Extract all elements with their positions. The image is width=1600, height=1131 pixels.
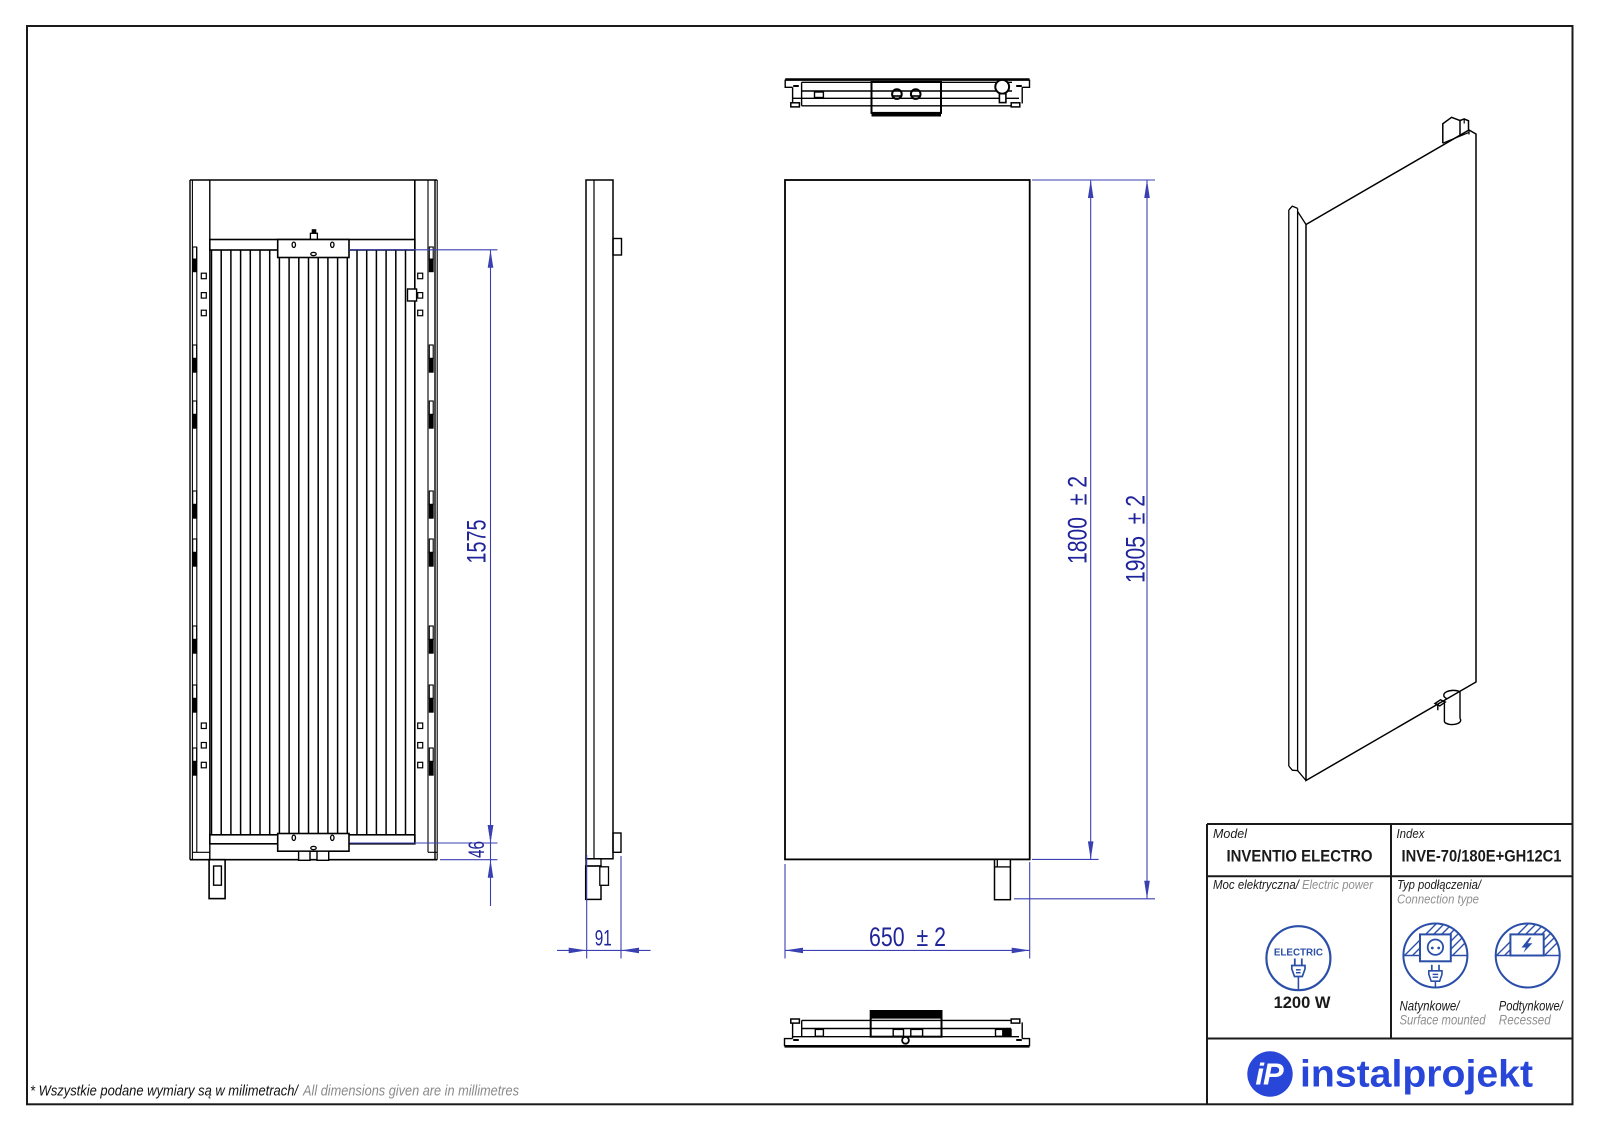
svg-text:Connection type: Connection type (1397, 892, 1479, 907)
svg-text:Electric power: Electric power (1302, 877, 1374, 892)
svg-text:1200 W: 1200 W (1274, 994, 1331, 1012)
svg-text:INVENTIO ELECTRO: INVENTIO ELECTRO (1227, 848, 1373, 866)
svg-text:46: 46 (464, 841, 489, 858)
svg-text:INVE-70/180E+GH12C1: INVE-70/180E+GH12C1 (1402, 848, 1562, 866)
svg-text:All dimensions given are in mi: All dimensions given are in millimetres (302, 1083, 519, 1100)
svg-text:Index: Index (1397, 827, 1426, 841)
svg-text:Surface mounted: Surface mounted (1400, 1012, 1487, 1028)
svg-text:91: 91 (595, 926, 612, 951)
svg-text:1800 ± 2: 1800 ± 2 (1063, 476, 1093, 564)
svg-text:1575: 1575 (462, 520, 492, 564)
svg-text:Moc elektryczna/: Moc elektryczna/ (1213, 877, 1300, 892)
svg-text:Typ podłączenia/: Typ podłączenia/ (1397, 877, 1482, 892)
svg-text:Recessed: Recessed (1499, 1012, 1552, 1028)
svg-text:1905 ± 2: 1905 ± 2 (1121, 495, 1151, 583)
svg-text:* Wszystkie podane wymiary są: * Wszystkie podane wymiary są w milimetr… (30, 1083, 300, 1100)
svg-text:iP: iP (1255, 1057, 1284, 1092)
svg-text:Model: Model (1213, 827, 1248, 841)
svg-text:instalprojekt: instalprojekt (1300, 1054, 1533, 1096)
svg-text:650 ± 2: 650 ± 2 (869, 922, 946, 952)
svg-text:ELECTRIC: ELECTRIC (1274, 947, 1323, 959)
